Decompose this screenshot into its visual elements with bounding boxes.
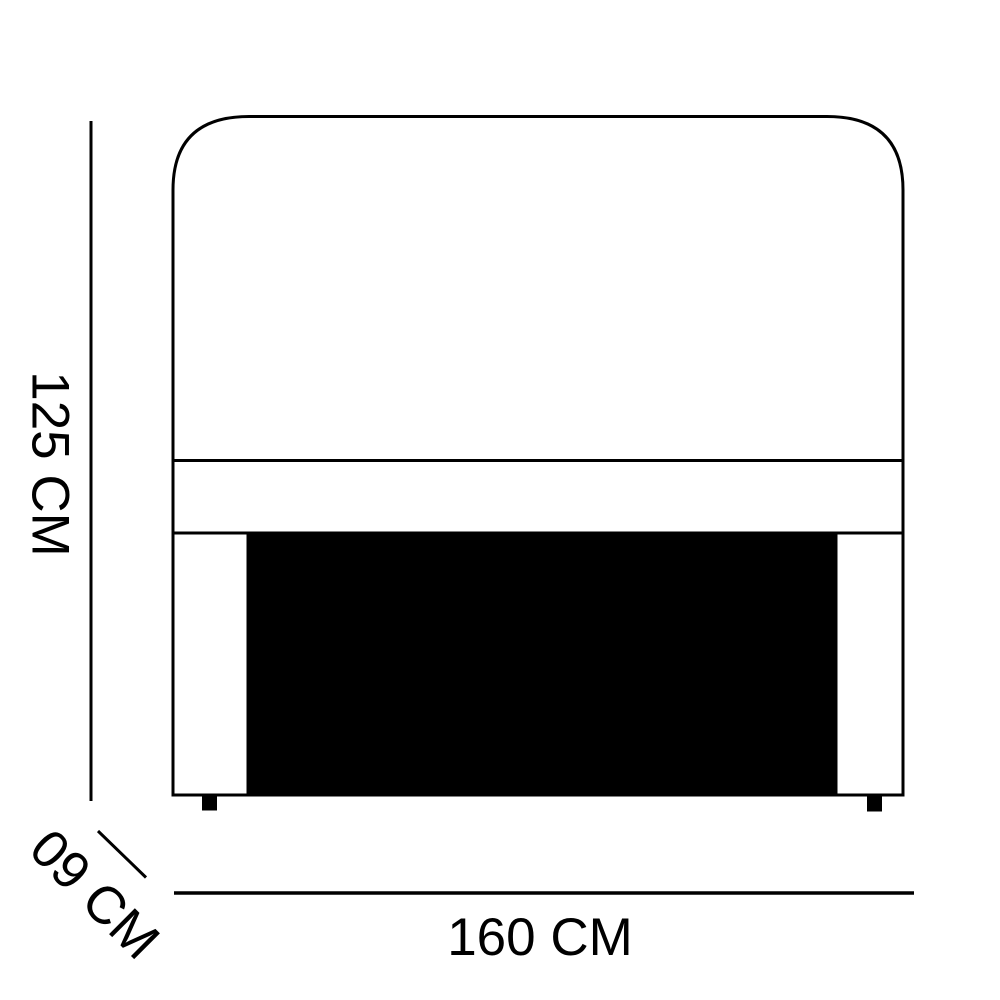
- svg-text:09 CM: 09 CM: [18, 819, 170, 971]
- svg-text:160 CM: 160 CM: [447, 908, 633, 967]
- svg-text:125 CM: 125 CM: [21, 371, 80, 557]
